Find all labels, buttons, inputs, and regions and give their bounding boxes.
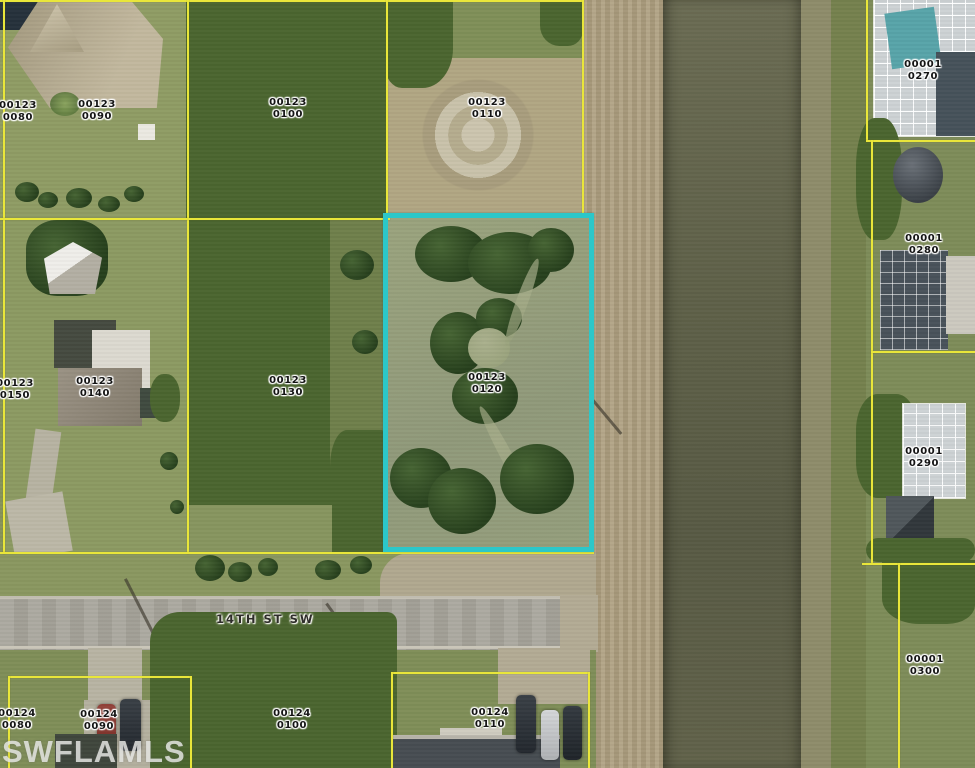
parcel-label: 001230090 bbox=[69, 99, 125, 122]
parcel-line bbox=[386, 0, 388, 219]
parcel-label: 001230100 bbox=[260, 97, 316, 120]
parcel-line bbox=[862, 563, 975, 565]
parcel-id: 0150 bbox=[0, 390, 43, 402]
tree-clump bbox=[385, 0, 453, 88]
car-dark bbox=[516, 695, 536, 753]
parcel-id: 00123 bbox=[0, 100, 46, 112]
canal-water bbox=[663, 0, 801, 768]
parcel-id: 0280 bbox=[896, 245, 952, 257]
parcel-label: 001240100 bbox=[264, 708, 320, 731]
parcel-id: 00124 bbox=[462, 707, 518, 719]
shrub bbox=[352, 330, 378, 354]
parcel-id: 00123 bbox=[260, 97, 316, 109]
parcel-label: 000010270 bbox=[895, 59, 951, 82]
parcel-id: 00123 bbox=[459, 372, 515, 384]
dirt-mound bbox=[418, 78, 538, 192]
driveway bbox=[498, 648, 590, 704]
driveway bbox=[5, 491, 73, 560]
parcel-id: 00123 bbox=[260, 375, 316, 387]
parcel-id: 0130 bbox=[260, 387, 316, 399]
parcel-id: 00001 bbox=[897, 654, 953, 666]
parcel-line bbox=[866, 0, 868, 142]
grass-verge bbox=[831, 0, 866, 768]
shrub bbox=[350, 556, 372, 574]
parcel-line bbox=[588, 672, 590, 768]
parcel-line bbox=[871, 351, 975, 353]
parcel-id: 0080 bbox=[0, 112, 46, 124]
tree-clump bbox=[882, 560, 975, 624]
parcel-id: 0270 bbox=[895, 71, 951, 83]
parcel-id: 0110 bbox=[462, 719, 518, 731]
shrub bbox=[340, 250, 374, 280]
parcel-label: 001230080 bbox=[0, 100, 46, 123]
parcel-line bbox=[0, 218, 390, 220]
parcel-label: 001240110 bbox=[462, 707, 518, 730]
parcel-label: 001230140 bbox=[67, 376, 123, 399]
parcel-label: 001240090 bbox=[71, 709, 127, 732]
shrub bbox=[160, 452, 178, 470]
parcel-id: 00001 bbox=[896, 446, 952, 458]
shrub bbox=[124, 186, 144, 202]
parcel-line bbox=[391, 672, 590, 674]
shed bbox=[138, 124, 155, 140]
street-edge bbox=[0, 596, 596, 599]
parcel-label: 001230130 bbox=[260, 375, 316, 398]
parcel-id: 0090 bbox=[71, 721, 127, 733]
parcel-id: 00123 bbox=[459, 97, 515, 109]
parcel-id: 0290 bbox=[896, 458, 952, 470]
parcel-label: 000010290 bbox=[896, 446, 952, 469]
street-name-label: 14TH ST SW bbox=[216, 613, 315, 625]
parcel-id: 0090 bbox=[69, 111, 125, 123]
tree-clump bbox=[540, 0, 583, 46]
car-dark bbox=[563, 706, 582, 760]
parcel-id: 0080 bbox=[0, 720, 45, 732]
parcel-label: 000010280 bbox=[896, 233, 952, 256]
shrub bbox=[66, 188, 92, 208]
tree-clump bbox=[150, 374, 180, 422]
parcel-line bbox=[3, 0, 5, 554]
pool-enclosure bbox=[880, 250, 948, 350]
parcel-id: 00123 bbox=[0, 378, 43, 390]
shrub bbox=[258, 558, 278, 576]
shrub bbox=[228, 562, 252, 582]
street-end-dirt bbox=[560, 595, 598, 652]
parcel-line bbox=[190, 676, 192, 768]
parcel-id: 00123 bbox=[69, 99, 125, 111]
shrub bbox=[15, 182, 39, 202]
parcel-label-highlighted: 001230120 bbox=[459, 372, 515, 395]
parcel-label: 000010300 bbox=[897, 654, 953, 677]
tree-canopy bbox=[150, 612, 397, 768]
parcel-id: 0100 bbox=[260, 109, 316, 121]
storage-dome bbox=[893, 147, 943, 203]
parcel-id: 00123 bbox=[67, 376, 123, 388]
parcel-label: 001230110 bbox=[459, 97, 515, 120]
parcel-line bbox=[8, 676, 191, 678]
parcel-line bbox=[187, 0, 189, 554]
parcel-id: 00001 bbox=[896, 233, 952, 245]
shrub bbox=[38, 192, 58, 208]
shrub-row bbox=[866, 538, 975, 562]
parcel-line bbox=[0, 552, 594, 554]
parcel-line bbox=[866, 140, 975, 142]
canal-bank-east bbox=[801, 0, 831, 768]
tree-canopy bbox=[187, 219, 337, 519]
shrub bbox=[170, 500, 184, 514]
aerial-photo: 001230080 001230090 001230100 001230110 … bbox=[0, 0, 975, 768]
lawn-patch bbox=[187, 505, 332, 553]
parcel-id: 00124 bbox=[0, 708, 45, 720]
parcel-id: 00124 bbox=[71, 709, 127, 721]
watermark: SWFLAMLS bbox=[2, 736, 186, 767]
parcel-id: 0300 bbox=[897, 666, 953, 678]
parcel-line bbox=[582, 0, 584, 217]
parcel-id: 0110 bbox=[459, 109, 515, 121]
tree-clump bbox=[330, 430, 387, 553]
shrub bbox=[195, 555, 225, 581]
parcel-label: 001230150 bbox=[0, 378, 43, 401]
parcel-id: 0140 bbox=[67, 388, 123, 400]
shrub bbox=[98, 196, 120, 212]
parcel-label: 001240080 bbox=[0, 708, 45, 731]
parcel-line bbox=[391, 672, 393, 768]
parcel-id: 0120 bbox=[459, 384, 515, 396]
parcel-id: 0100 bbox=[264, 720, 320, 732]
dirt-shoulder bbox=[380, 553, 596, 599]
parcel-line bbox=[0, 0, 584, 2]
parcel-id: 00124 bbox=[264, 708, 320, 720]
parcel-id: 00001 bbox=[895, 59, 951, 71]
car-silver bbox=[541, 710, 559, 760]
shrub bbox=[315, 560, 341, 580]
roof-section bbox=[946, 256, 975, 334]
